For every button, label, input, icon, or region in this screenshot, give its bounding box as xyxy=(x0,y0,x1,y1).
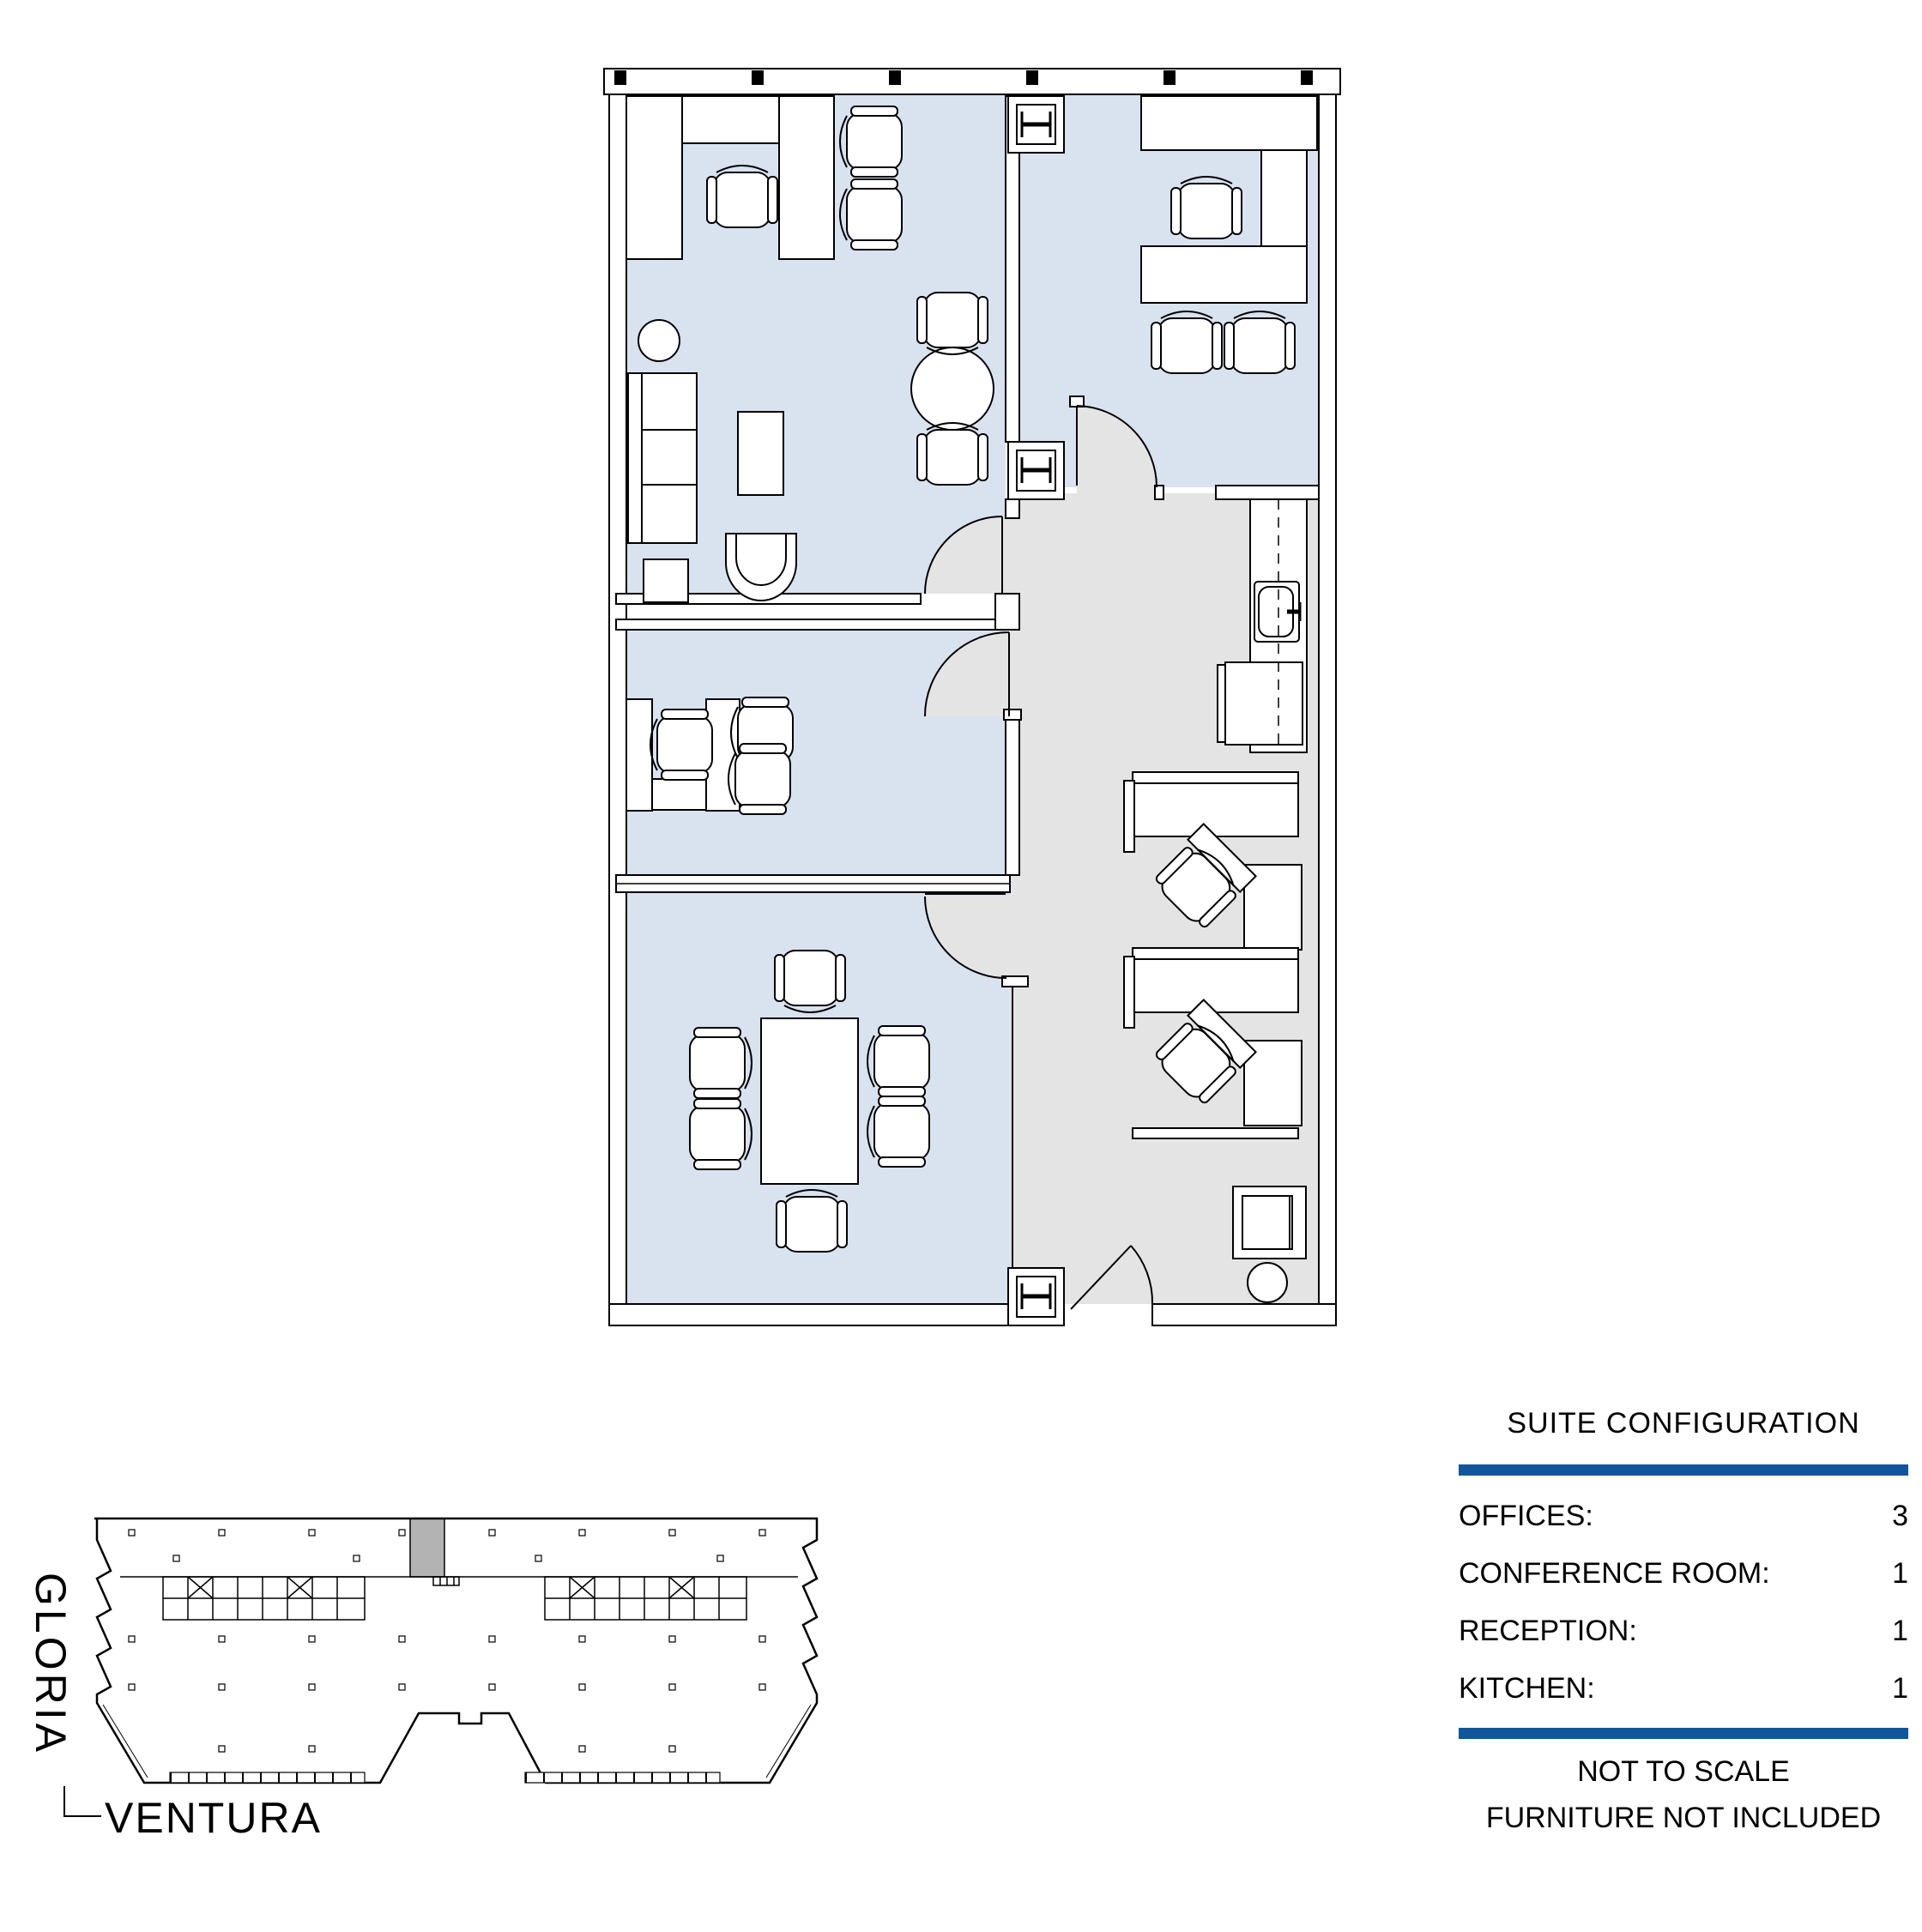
conference-table xyxy=(761,1018,858,1184)
legend-rows: OFFICES: 3 CONFERENCE ROOM: 1 RECEPTION:… xyxy=(1459,1499,1908,1706)
legend-label: KITCHEN: xyxy=(1459,1671,1595,1706)
stool xyxy=(1248,1263,1287,1302)
sofa xyxy=(628,373,697,543)
legend-label: RECEPTION: xyxy=(1459,1614,1637,1648)
suite-configuration-legend: SUITE CONFIGURATION OFFICES: 3 CONFERENC… xyxy=(1459,1397,1908,1835)
side-table xyxy=(644,559,688,602)
street-label-gloria: GLORIA xyxy=(26,1573,76,1755)
legend-row-offices: OFFICES: 3 xyxy=(1459,1499,1908,1533)
legend-label: CONFERENCE ROOM: xyxy=(1459,1556,1770,1591)
building-core xyxy=(120,1577,798,1620)
legend-divider-bottom xyxy=(1459,1728,1908,1739)
coffee-table xyxy=(738,412,783,495)
legend-value: 1 xyxy=(1892,1671,1908,1706)
legend-row-reception: RECEPTION: 1 xyxy=(1459,1614,1908,1648)
note-not-to-scale: NOT TO SCALE xyxy=(1459,1754,1908,1789)
side-table-round xyxy=(638,320,680,361)
legend-row-conference: CONFERENCE ROOM: 1 xyxy=(1459,1556,1908,1591)
legend-value: 1 xyxy=(1892,1614,1908,1648)
meeting-table-round xyxy=(911,347,994,430)
page: GLORIA VENTURA SUITE CONFIGURATION OFFIC… xyxy=(0,0,1922,1932)
legend-row-kitchen: KITCHEN: 1 xyxy=(1459,1671,1908,1706)
suite-floor-plan xyxy=(599,67,1344,1338)
suite-location-highlight xyxy=(410,1518,444,1577)
street-label-ventura: VENTURA xyxy=(105,1793,322,1843)
legend-label: OFFICES: xyxy=(1459,1499,1593,1533)
legend-divider-top xyxy=(1459,1464,1908,1476)
column-grid-dots xyxy=(129,1530,765,1752)
street-leader-line xyxy=(64,1786,101,1816)
conference-room-furniture xyxy=(761,1018,858,1184)
window-strips xyxy=(170,1772,720,1783)
corner-chamfers xyxy=(103,1705,811,1778)
legend-title: SUITE CONFIGURATION xyxy=(1459,1397,1908,1440)
building-outline xyxy=(94,1518,817,1783)
refrigerator xyxy=(1225,662,1302,745)
legend-value: 1 xyxy=(1892,1556,1908,1591)
legend-value: 3 xyxy=(1892,1499,1908,1533)
note-furniture: FURNITURE NOT INCLUDED xyxy=(1459,1801,1908,1835)
